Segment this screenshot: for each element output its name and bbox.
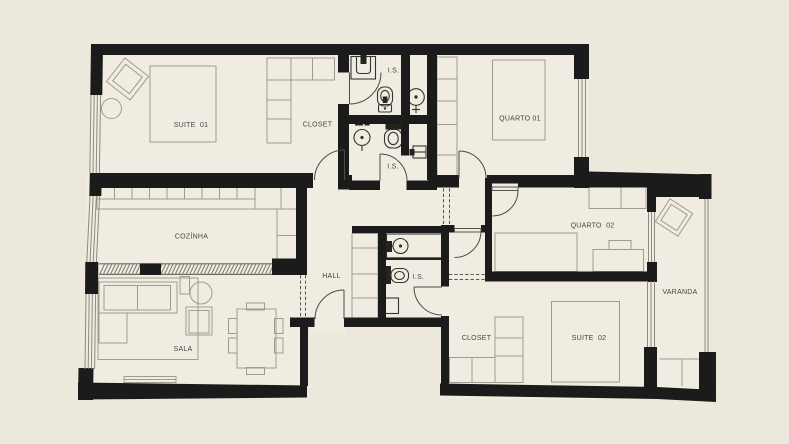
svg-text:CLOSET: CLOSET <box>462 335 492 342</box>
svg-text:I.S.: I.S. <box>413 274 425 281</box>
svg-text:VARANDA: VARANDA <box>662 289 697 296</box>
svg-text:CLOSET: CLOSET <box>303 122 333 129</box>
svg-text:I.S.: I.S. <box>388 68 400 75</box>
svg-text:SUITE 01: SUITE 01 <box>174 122 209 129</box>
svg-text:QUARTO 02: QUARTO 02 <box>571 223 615 230</box>
svg-text:HALL: HALL <box>322 273 341 280</box>
svg-text:QUARTO 01: QUARTO 01 <box>499 116 541 123</box>
svg-text:SUITE 02: SUITE 02 <box>572 335 607 342</box>
svg-text:I.S.: I.S. <box>387 164 399 171</box>
svg-text:SALA: SALA <box>174 346 193 353</box>
svg-text:COZÍNHA: COZÍNHA <box>175 232 208 241</box>
